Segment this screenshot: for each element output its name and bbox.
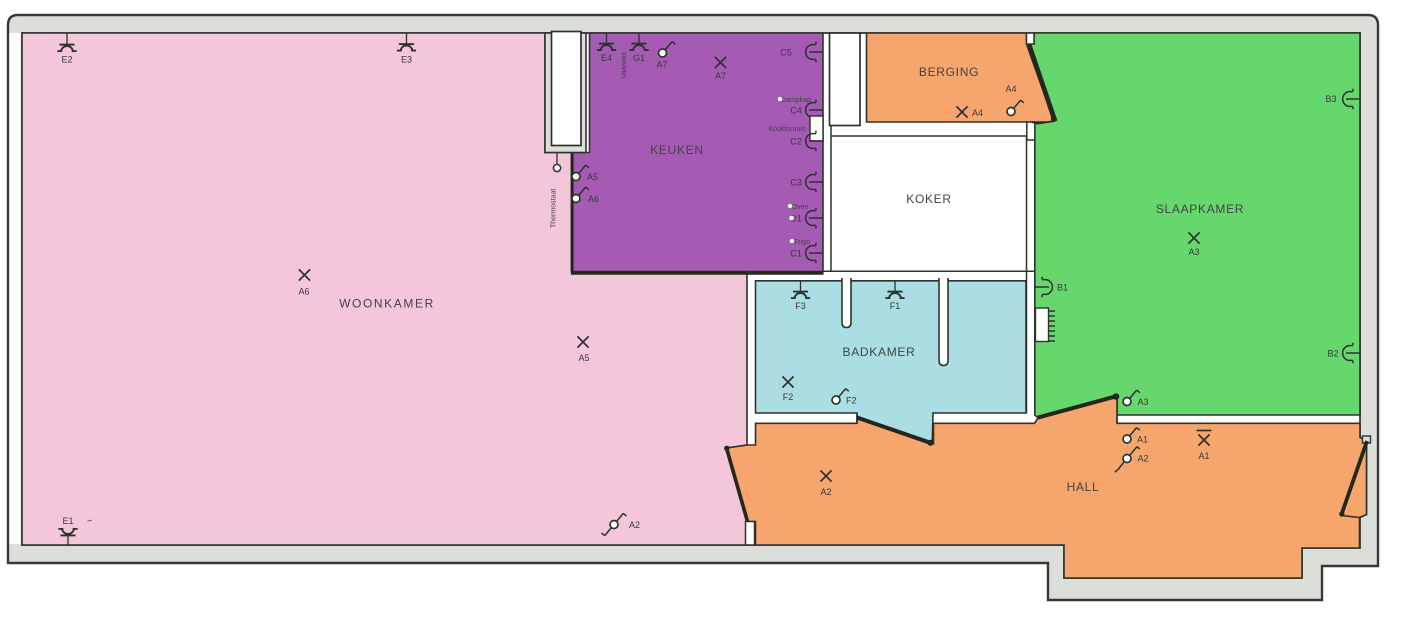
svg-text:Thermostaat: Thermostaat [551,189,558,228]
svg-text:F2: F2 [846,396,857,406]
svg-text:KEUKEN: KEUKEN [650,143,704,157]
svg-text:A2: A2 [1138,454,1149,464]
svg-text:F2: F2 [783,392,794,402]
svg-text:A5: A5 [578,353,589,363]
svg-text:SLAAPKAMER: SLAAPKAMER [1156,202,1244,216]
svg-text:A6: A6 [588,194,599,204]
svg-text:A6: A6 [298,287,309,297]
svg-text:Dampkap: Dampkap [781,97,811,104]
svg-text:Kookfornuis: Kookfornuis [769,126,806,133]
svg-text:A2: A2 [629,520,640,530]
svg-text:B3: B3 [1325,94,1336,104]
svg-text:A5: A5 [587,172,598,182]
svg-text:A1: A1 [1198,451,1209,461]
svg-text:E2: E2 [61,55,72,65]
svg-text:A7: A7 [656,60,667,70]
svg-text:A7: A7 [715,71,726,81]
svg-text:Vaatwas: Vaatwas [621,52,628,79]
svg-text:BADKAMER: BADKAMER [843,345,916,359]
svg-text:WOONKAMER: WOONKAMER [339,297,435,311]
svg-text:A2: A2 [820,487,831,497]
svg-text:Frigo: Frigo [794,239,810,246]
svg-text:C3: C3 [790,178,802,188]
svg-text:A3: A3 [1188,247,1199,257]
svg-text:A4: A4 [1005,84,1016,94]
svg-text:F1: F1 [890,301,901,311]
svg-text:A4: A4 [972,108,983,118]
svg-text:F3: F3 [795,301,806,311]
svg-text:C1: C1 [790,249,802,259]
svg-text:KOKER: KOKER [906,192,952,206]
svg-text:BERGING: BERGING [919,65,979,79]
svg-text:C5: C5 [780,48,792,58]
svg-text:B1: B1 [1057,283,1068,293]
svg-text:E3: E3 [401,55,412,65]
svg-text:A1: A1 [1137,435,1148,445]
svg-text:E4: E4 [601,53,612,63]
svg-text:HALL: HALL [1067,480,1100,494]
svg-text:E1: E1 [62,516,73,526]
svg-text:G1: G1 [633,53,645,63]
svg-text:Oven: Oven [792,204,809,211]
svg-text:C4: C4 [790,106,802,116]
svg-text:B2: B2 [1327,349,1338,359]
svg-text:C2: C2 [790,137,802,147]
svg-text:A3: A3 [1138,397,1149,407]
